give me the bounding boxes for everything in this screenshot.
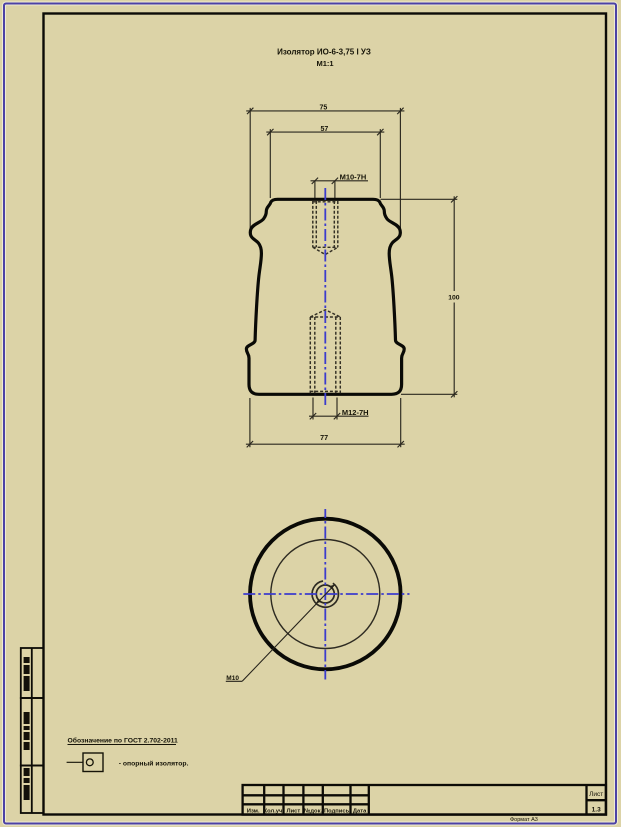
svg-text:№док.: №док. [304, 808, 323, 814]
svg-text:57: 57 [321, 126, 329, 133]
svg-text:1.3: 1.3 [592, 806, 601, 813]
svg-text:- опорный изолятор.: - опорный изолятор. [119, 759, 189, 767]
svg-text:М1:1: М1:1 [316, 59, 333, 68]
svg-text:Дата: Дата [353, 808, 367, 814]
svg-text:Изолятор ИО-6-3,75 I УЗ: Изолятор ИО-6-3,75 I УЗ [277, 48, 371, 57]
svg-text:M10: M10 [226, 675, 239, 682]
svg-text:77: 77 [320, 433, 328, 442]
svg-text:M12-7H: M12-7H [342, 408, 369, 417]
svg-text:Кол.уч.: Кол.уч. [264, 808, 285, 814]
svg-text:Лист: Лист [287, 808, 301, 814]
svg-text:Лист: Лист [589, 791, 603, 798]
svg-text:Подпись: Подпись [324, 808, 350, 814]
svg-text:75: 75 [320, 104, 328, 111]
svg-text:100: 100 [448, 295, 460, 302]
svg-text:M10-7H: M10-7H [340, 172, 367, 181]
svg-text:Изм.: Изм. [247, 808, 260, 814]
svg-text:Обозначение по ГОСТ 2.702-2011: Обозначение по ГОСТ 2.702-2011 [68, 737, 179, 745]
svg-text:Формат А3: Формат А3 [510, 817, 538, 823]
